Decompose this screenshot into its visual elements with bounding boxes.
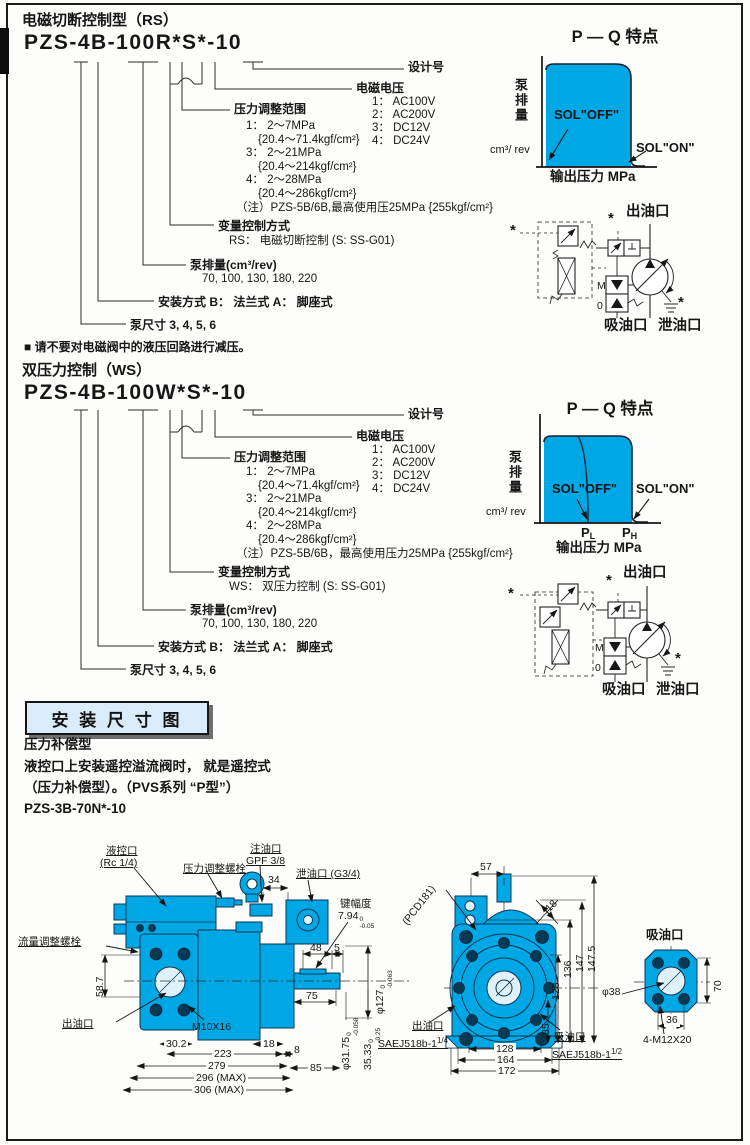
- rs-chart-xlabel: 输出压力 MPa: [550, 170, 636, 183]
- ws-displacement-label: 泵排量(cm³/rev): [190, 604, 277, 617]
- ws-control-label: 变量控制方式: [218, 566, 290, 579]
- dim-306-max: 306 (MAX): [192, 1084, 246, 1097]
- ws-displacement-value: 70, 100, 130, 180, 220: [202, 618, 317, 631]
- ws-suction-port-label: 吸油口: [602, 684, 646, 697]
- rs-chart-ylabel: 泵排量: [514, 78, 527, 123]
- tol-bot: -0.058: [354, 1017, 361, 1035]
- rs-drain-port-label: 泄油口: [658, 320, 702, 333]
- ws-pressure-item: {20.4～71.4kgf/cm²}: [258, 480, 360, 493]
- sae-fraction: 1/4: [437, 1036, 448, 1045]
- rs-suction-port-label: 吸油口: [604, 320, 648, 333]
- dim-58.7: 58.7: [94, 977, 107, 997]
- ws-mounting-label: 安装方式 B： 法兰式 A： 脚座式: [158, 641, 333, 654]
- dim-75: 75: [306, 990, 318, 1003]
- rs-star-mark: *: [678, 296, 684, 309]
- ws-pressure-item: 1： 2～7MPa: [246, 466, 315, 479]
- rs-voltage-label: 电磁电压: [356, 82, 404, 95]
- ws-star-mark: *: [508, 587, 514, 600]
- rs-control-label: 变量控制方式: [218, 220, 290, 233]
- install-section-header: 安 装 尺 寸 图: [25, 701, 209, 735]
- flange-title: 吸油口: [646, 929, 684, 942]
- rs-pressure-item: {20.4～286kgf/cm²}: [258, 188, 356, 201]
- dim-36: 36: [664, 1014, 680, 1027]
- install-line1: 压力补偿型: [24, 738, 92, 751]
- install-model: PZS-3B-70N*-10: [24, 802, 126, 815]
- rs-pressure-note: （注）PZS-5B/6B,最高使用压25MPa {255kgf/cm²}: [236, 202, 493, 215]
- dim-48: 48: [310, 942, 322, 955]
- ws-pressure-item: {20.4～286kgf/cm²}: [258, 534, 356, 547]
- catalog-page: 电磁切断控制型（RS） PZS-4B-100R*S*-10 设计号 电磁电压 1…: [0, 0, 750, 1145]
- ws-pressure-item: 4： 2～28MPa: [246, 520, 321, 533]
- rs-voltage-item: 2： AC200V: [372, 109, 435, 122]
- front-suction-port-label: 吸油口: [554, 1031, 586, 1044]
- rs-mounting-label: 安装方式 B： 法兰式 A： 脚座式: [158, 296, 333, 309]
- ws-chart-ylabel: 泵排量: [508, 450, 521, 495]
- dim-18: 18: [261, 1038, 277, 1051]
- rs-outlet-port-label: 出油口: [626, 206, 670, 219]
- rs-voltage-item: 4： DC24V: [372, 135, 430, 148]
- ws-design-no-label: 设计号: [408, 408, 444, 421]
- rs-section-title: 电磁切断控制型（RS）: [22, 14, 178, 27]
- dim-85: 85: [308, 1062, 324, 1075]
- side-outlet-port-label: 出油口: [62, 1018, 94, 1031]
- rs-sol-off-label: SOL"OFF": [554, 108, 619, 121]
- sae-code: SAEJ518b-1: [552, 1049, 611, 1061]
- dim-phi127: φ1270-0.063: [374, 970, 394, 1014]
- rs-pressure-item: 3： 2～21MPa: [246, 147, 321, 160]
- key-width-value: 7.940-0.05: [338, 910, 374, 930]
- rs-pressure-item: 1： 2～7MPa: [246, 120, 315, 133]
- key-value: 7.94: [338, 910, 358, 922]
- front-outlet-port-label: 出油口: [412, 1020, 444, 1033]
- ws-drain-port-label: 泄油口: [656, 684, 700, 697]
- phi127-value: φ127: [374, 990, 386, 1014]
- dim-5: 5: [334, 942, 340, 955]
- rs-sol-on-label: SOL"ON": [636, 141, 695, 154]
- front-outlet-port-size: SAEJ518b-11/4: [378, 1034, 448, 1051]
- dim-172: 172: [496, 1065, 518, 1078]
- page-note: ■ 请不要对电磁阀中的液压回路进行减压。: [24, 341, 251, 354]
- tol-bot: -0.05: [359, 924, 374, 931]
- dim-34: 34: [268, 874, 280, 887]
- dim-8: 8: [294, 1044, 300, 1057]
- ws-chart-xlabel: 输出压力 MPa: [556, 541, 642, 554]
- drain-port-label: 泄油口 (G3/4): [296, 868, 360, 881]
- ws-voltage-item: 2： AC200V: [372, 457, 435, 470]
- rs-chart-yunit: cm³/ rev: [490, 144, 530, 157]
- ws-outlet-port-label: 出油口: [623, 567, 667, 580]
- ws-valve-m-label: M: [595, 642, 604, 655]
- ws-chart-title: P — Q 特点: [535, 403, 685, 416]
- dim-phi38: φ38: [602, 986, 621, 999]
- ws-chart-yunit: cm³/ rev: [486, 506, 526, 519]
- rs-design-no-label: 设计号: [408, 61, 444, 74]
- rs-size-label: 泵尺寸 3, 4, 5, 6: [130, 319, 216, 332]
- dim-m10x16: M10X16: [192, 1021, 231, 1034]
- sae-code: SAEJ518b-1: [378, 1038, 437, 1050]
- ws-pq-chart: [534, 414, 661, 523]
- key-tolerance: 0-0.05: [359, 917, 374, 930]
- dim-57: 57: [480, 861, 492, 874]
- ph-main: P: [622, 525, 631, 540]
- pressure-adjust-screw-label: 压力调整螺栓: [183, 863, 246, 876]
- phi127-tolerance: 0-0.063: [381, 970, 394, 988]
- sae-fraction: 1/2: [611, 1047, 622, 1056]
- phi3175-tolerance: 0-0.058: [347, 1017, 360, 1035]
- install-line3: （压力补偿型）。（PVS系列 “P型”）: [24, 781, 239, 794]
- rs-pressure-item: {20.4～71.4kgf/cm²}: [258, 134, 360, 147]
- dim-85-vertical: 85: [540, 1023, 553, 1035]
- rs-valve-m-label: M: [597, 280, 606, 293]
- tol-bot: -0.063: [388, 970, 395, 988]
- flow-adjust-screw-label: 流量调整螺栓: [18, 936, 81, 949]
- page-edge-tab: [0, 28, 9, 74]
- rs-pressure-item: 4： 2～28MPa: [246, 174, 321, 187]
- ws-model-code: PZS-4B-100W*S*-10: [24, 386, 247, 399]
- install-line2: 液控口上安装遥控溢流阀时， 就是遥控式: [24, 760, 271, 773]
- ws-valve-zero-label: 0: [595, 662, 601, 675]
- ws-pressure-note: （注）PZS-5B/6B，最高使用压力25MPa {255kgf/cm²}: [236, 548, 513, 561]
- ws-voltage-item: 4： DC24V: [372, 483, 430, 496]
- dim-147.5: 147.5: [586, 946, 599, 972]
- ws-sol-off-label: SOL"OFF": [552, 482, 617, 495]
- pl-main: P: [581, 525, 590, 540]
- ws-sol-on-label: SOL"ON": [636, 482, 695, 495]
- rs-chart-title: P — Q 特点: [540, 31, 690, 44]
- rs-voltage-item: 3： DC12V: [372, 122, 430, 135]
- ws-voltage-item: 1： AC100V: [372, 444, 435, 457]
- rs-displacement-label: 泵排量(cm³/rev): [190, 259, 277, 272]
- dim-70: 70: [712, 980, 725, 992]
- ws-star-mark: *: [606, 574, 612, 587]
- rs-star-mark: *: [510, 224, 516, 237]
- ws-pressure-item: {20.4～214kgf/cm²}: [258, 507, 356, 520]
- front-suction-port-size: SAEJ518b-11/2: [552, 1045, 622, 1062]
- dim-4-m12x20: 4-M12X20: [643, 1034, 691, 1047]
- ws-star-mark: *: [675, 652, 681, 665]
- fill-port-size: GPF 3/8: [246, 855, 285, 868]
- rs-pressure-label: 压力调整范围: [234, 103, 306, 116]
- rs-star-mark: *: [608, 212, 614, 225]
- pilot-port-size: (Rc 1/4): [100, 857, 137, 870]
- phi3175-value: φ31.75: [340, 1037, 352, 1070]
- rs-valve-zero-label: 0: [597, 300, 603, 313]
- ws-voltage-item: 3： DC12V: [372, 470, 430, 483]
- rs-control-value: RS： 电磁切断控制 (S: SS-G01): [229, 235, 395, 248]
- rs-model-code: PZS-4B-100R*S*-10: [24, 36, 242, 49]
- dim-phi31.75: φ31.750-0.058: [340, 1017, 360, 1070]
- ws-voltage-label: 电磁电压: [356, 430, 404, 443]
- dim-30.2: 30.2: [164, 1038, 188, 1051]
- d3533-value: 35.33: [362, 1044, 374, 1070]
- ws-pressure-item: 3： 2～21MPa: [246, 493, 321, 506]
- ws-pressure-label: 压力调整范围: [234, 451, 306, 464]
- rs-voltage-item: 1： AC100V: [372, 96, 435, 109]
- rs-displacement-value: 70, 100, 130, 180, 220: [202, 273, 317, 286]
- ws-size-label: 泵尺寸 3, 4, 5, 6: [130, 664, 216, 677]
- ws-section-title: 双压力控制（WS）: [22, 364, 151, 377]
- dim-128-vertical: 128: [550, 982, 563, 1000]
- rs-pressure-item: {20.4～214kgf/cm²}: [258, 161, 356, 174]
- ws-control-value: WS： 双压力控制 (S: SS-G01): [229, 581, 386, 594]
